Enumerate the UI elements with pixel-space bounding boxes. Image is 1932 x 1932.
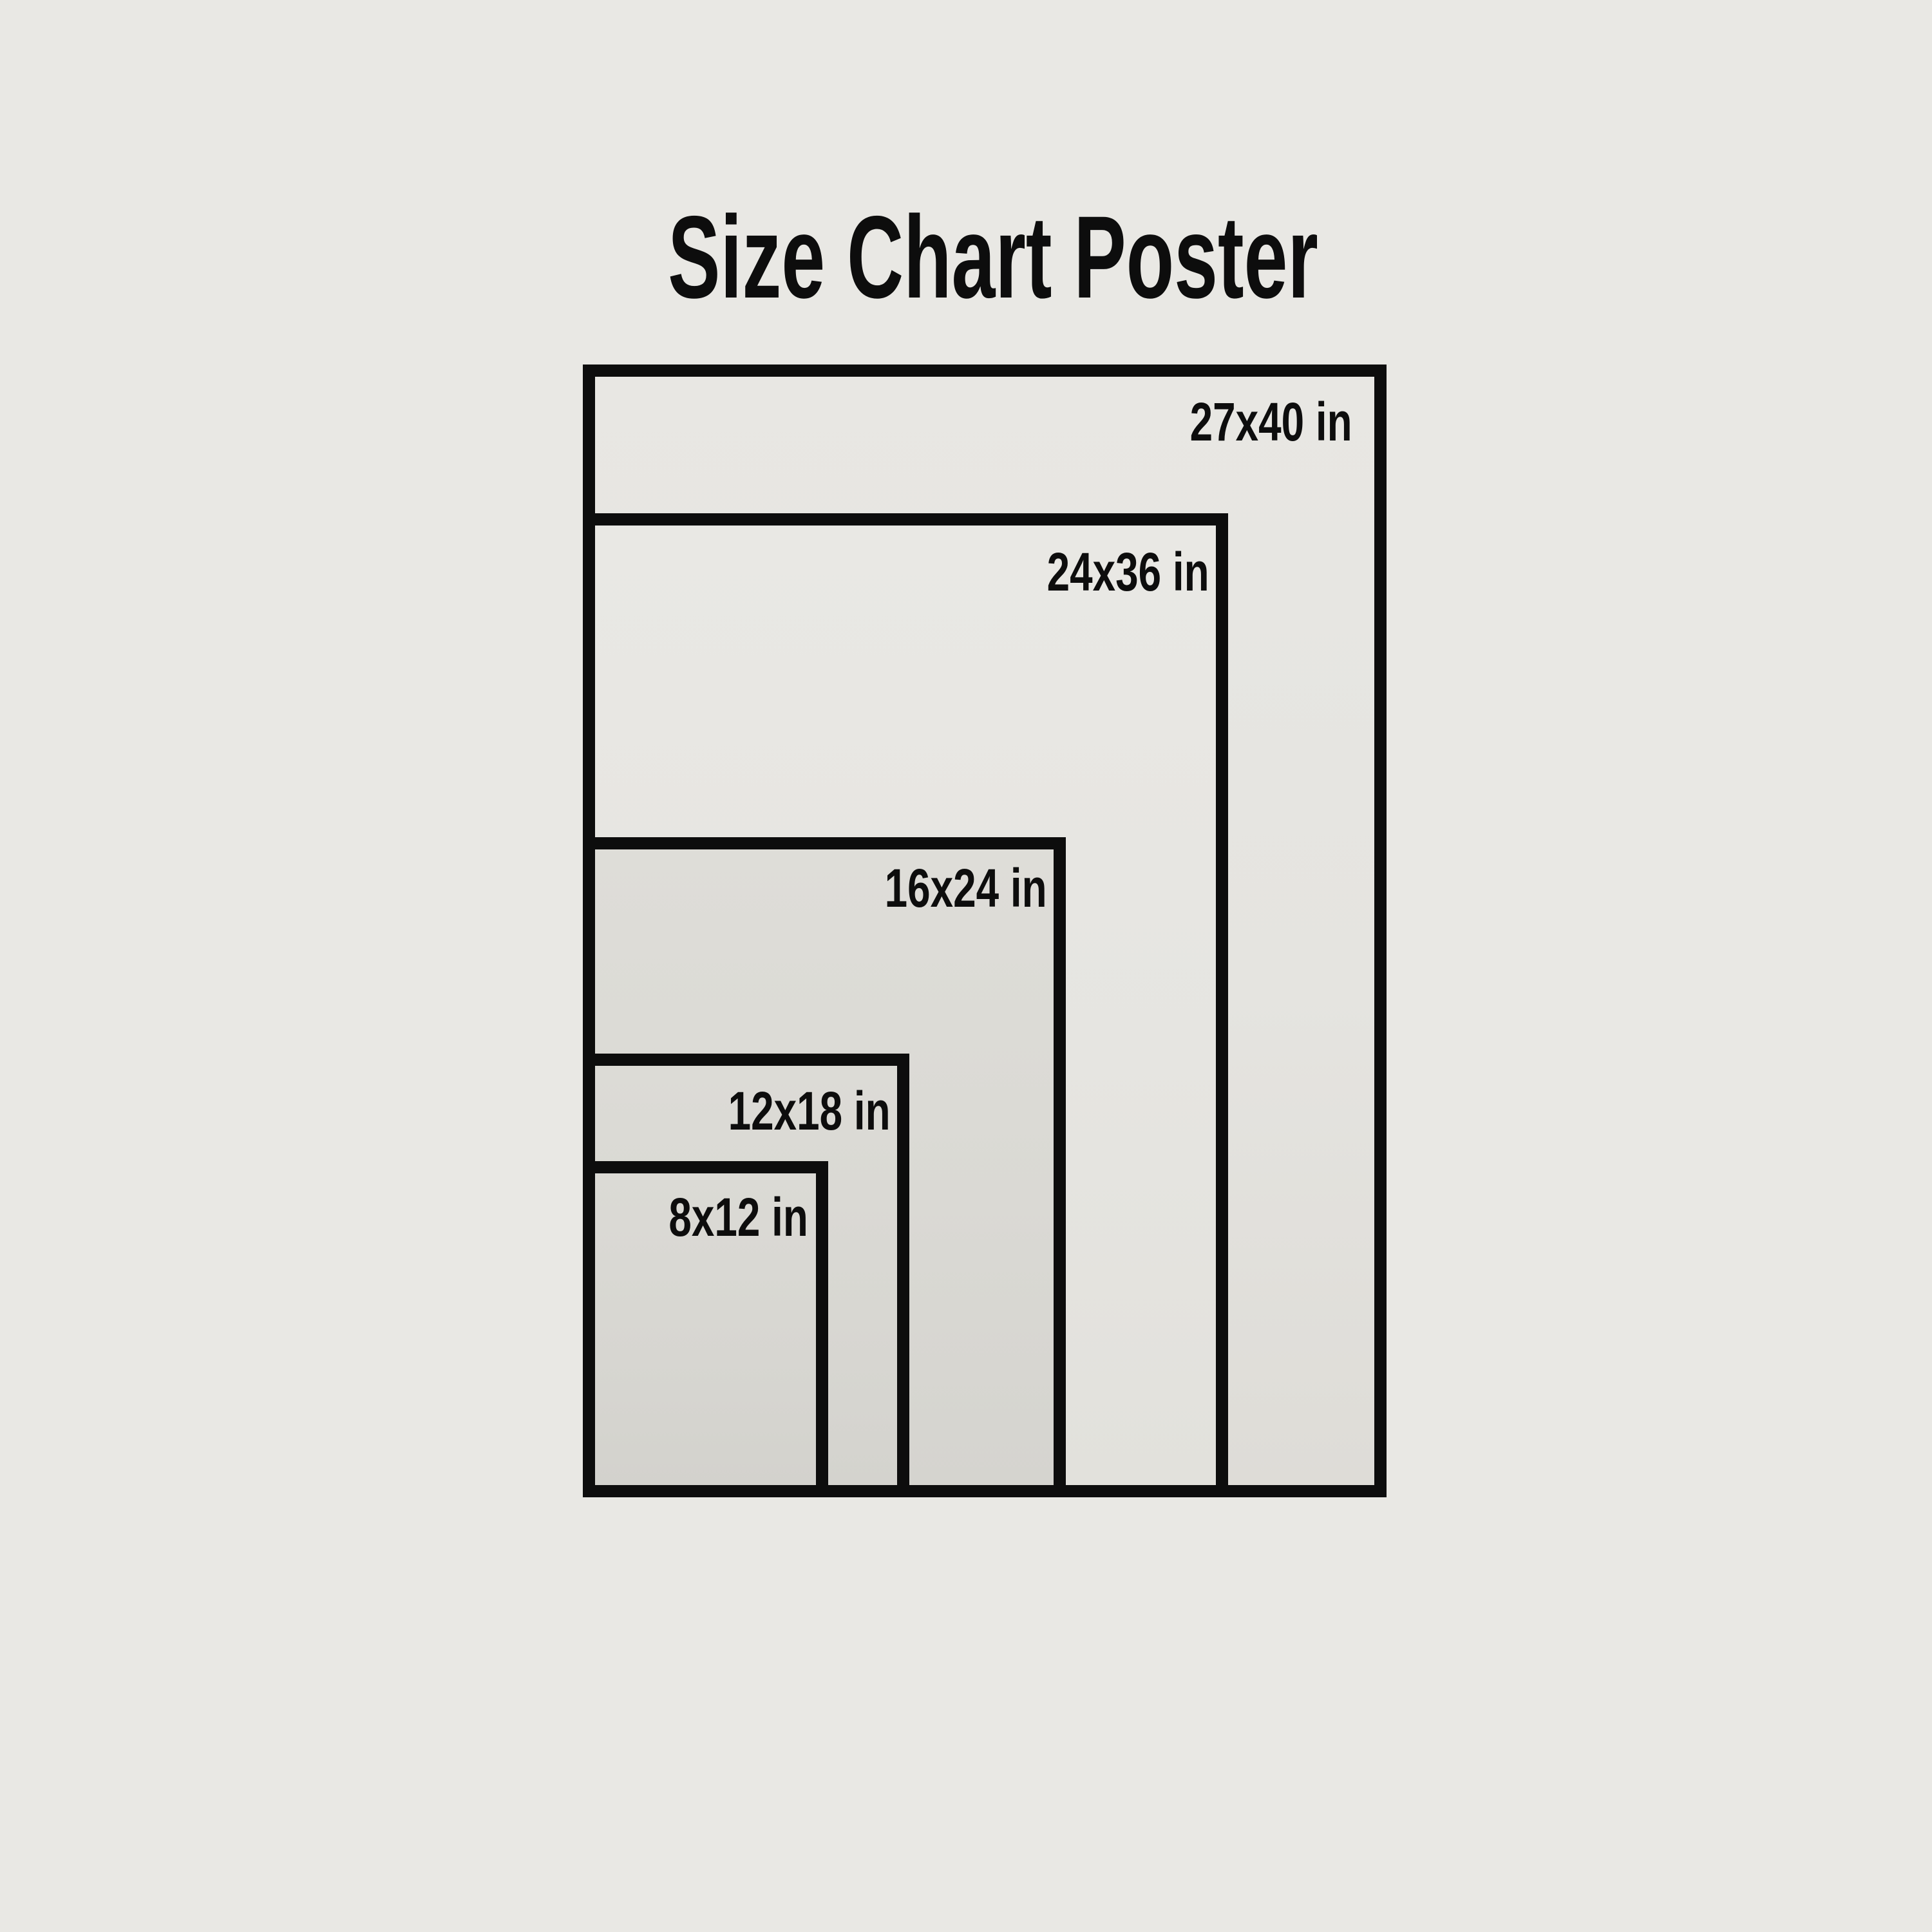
page-title: Size Chart Poster	[668, 198, 1318, 316]
size-label-16x24: 16x24 in	[885, 861, 1047, 915]
size-chart-poster: Size Chart Poster 27x40 in 24x36 in 16x2…	[0, 0, 1932, 1932]
size-rect-8x12: 8x12 in	[583, 1161, 828, 1497]
size-label-24x36: 24x36 in	[1047, 545, 1209, 599]
size-label-8x12: 8x12 in	[669, 1190, 808, 1244]
size-label-27x40: 27x40 in	[1190, 395, 1352, 449]
size-label-12x18: 12x18 in	[728, 1084, 891, 1138]
